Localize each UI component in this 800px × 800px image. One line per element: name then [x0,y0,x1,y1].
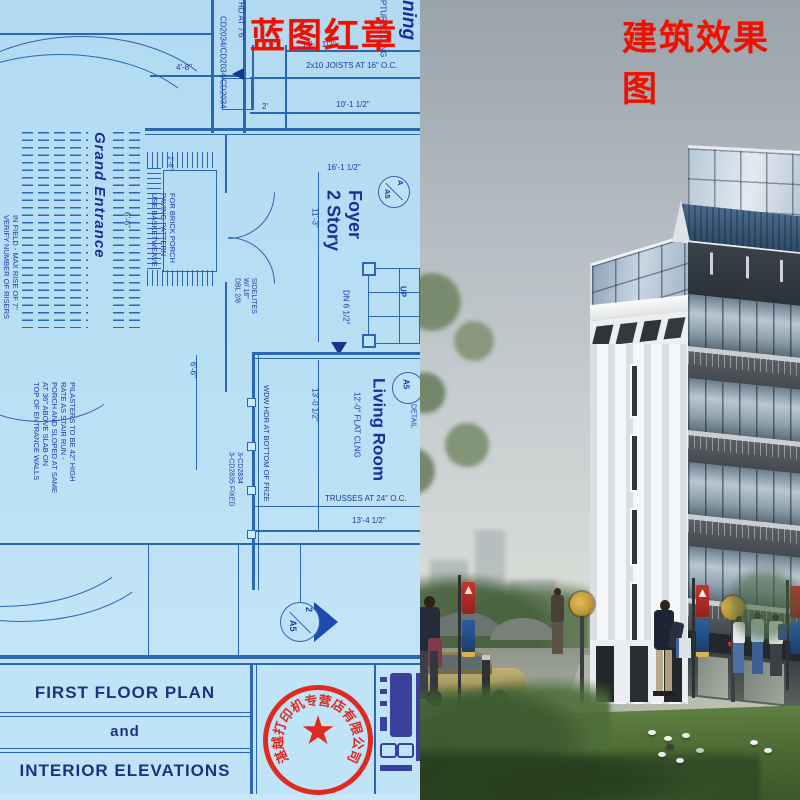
pigeon [682,733,690,738]
lamp-post [692,578,695,698]
newel-post [362,262,376,276]
note-up: UP [398,286,408,306]
window-symbol [247,442,256,451]
pigeon [676,758,684,763]
red-stamp: ★ 湛越打印机专营店有限公司 [263,685,373,795]
wall-line [250,77,420,79]
wall-line [225,135,227,193]
wall-line [211,0,214,133]
banner-blue [696,620,709,657]
wall-line [253,358,420,359]
note-joists: 2x10 JOISTS AT 16" O.C. [306,61,397,71]
pigeon [666,744,674,749]
note-wdw-hdr: WDW HDR AT BOTTOM OF FRZE [262,385,271,510]
banner-red [696,585,709,617]
room-foyer: 2 StoryFoyer [322,190,365,282]
note-trusses: TRUSSES AT 24" O.C. [325,494,407,504]
dim-16-1: 16'-1 1/2" [327,163,361,173]
dim-6-6-porch: 6'-6" [122,212,132,246]
note-dn: DN 6 1/2" [341,290,351,336]
door-swing-arc [228,192,275,239]
dim-13-0: 13'-0 1/2" [310,388,320,448]
dimension-line [318,172,319,342]
porch-edge-hatch [147,152,215,168]
wall-line [145,128,420,131]
note-dbl-sidelites: DBL 2/8W/ 16"SIDELITES [232,278,257,336]
window-symbol [247,398,256,407]
bush-leafy [420,740,760,800]
section-marker-bottom: 2 A5 [280,600,340,644]
pigeon [696,748,704,753]
dim-4-8: 4'-8" [176,63,192,73]
pigeon [648,730,656,735]
slit-window [632,510,637,564]
pedestrian-far [550,588,566,658]
note-cd-series: CD2034/CD2034/CD2034 [218,16,228,131]
dim-10-1: 10'-1 1/2" [336,100,370,110]
watermark-left: 蓝图红章 [250,8,398,59]
title-line1: FIRST FLOOR PLAN [0,683,250,703]
note-basketweave: USE BASKETWEAVE PAVING PATTERN FOR BRICK… [150,193,177,289]
wall-line [300,545,301,607]
dim-13-4: 13'-4 1/2" [352,516,386,526]
wall-line [253,352,420,355]
wall-line [255,506,420,507]
slit-window [632,366,637,416]
wall-line [148,545,149,657]
photo-panel: 建筑效果图 [420,0,800,800]
note-flat-clng: 12'-0" FLAT CLNG [352,392,362,482]
canopy-gable [672,200,690,242]
wall-line [250,112,420,114]
titleblock-border [0,655,420,659]
stamp-arc: 湛越打印机专营店有限公司 [263,685,373,795]
stair-up-box [368,268,420,344]
dimension-arrow [232,68,244,80]
wall-line [258,352,259,590]
blueprint-panel: 4'-8" CD2034/CD2034/CD2034 HD AT 7'6" 14… [0,0,425,800]
pigeon [750,740,758,745]
dimension-line [0,33,212,35]
room-dining-partial: ning [396,0,419,50]
newel-post [362,334,376,348]
dim-11-3: 11'-3" [310,208,320,248]
logo-fragment [378,669,420,790]
slit-window [632,436,637,490]
dim-2: 2' [262,102,268,112]
wall-line [238,545,239,657]
stair-treads [22,132,88,328]
section-marker-foyer: A A5 [378,176,410,208]
wall-line [255,530,420,532]
banner-red [462,582,475,614]
banner-blue [462,620,475,657]
bush-right [720,560,800,650]
note-detail: DETAIL [408,404,416,444]
dim-6-6: 6'-6" [188,362,198,396]
pedestrian-man [648,600,682,700]
wall-line [252,352,255,590]
watermark-right: 建筑效果图 [622,10,800,112]
door-swing-arc [228,237,275,284]
note-verify-risers: VERIFY NUMBER OF RISERSIN FIELD - MAX RI… [2,215,20,345]
wreath-ornament [570,592,594,616]
pigeon [764,748,772,753]
pigeon [664,736,672,741]
wall-line [225,282,227,392]
slit-window [632,584,637,640]
title-line2: and [0,723,250,741]
window-symbol [247,486,256,495]
screenshot-root: 4'-8" CD2034/CD2034/CD2034 HD AT 7'6" 14… [0,0,800,800]
note-fixed-windows: 3-CD2835 FIXED3-CD2834 [226,452,243,530]
room-grand-entrance: Grand Entrance [90,132,108,327]
note-hd-at: HD AT 7'6" [236,2,246,47]
dimension-line [150,75,245,77]
pigeon [658,752,666,757]
dim-2-6: 2'-6" [165,156,173,186]
wall-line [145,134,420,135]
title-line3: INTERIOR ELEVATIONS [0,761,250,781]
